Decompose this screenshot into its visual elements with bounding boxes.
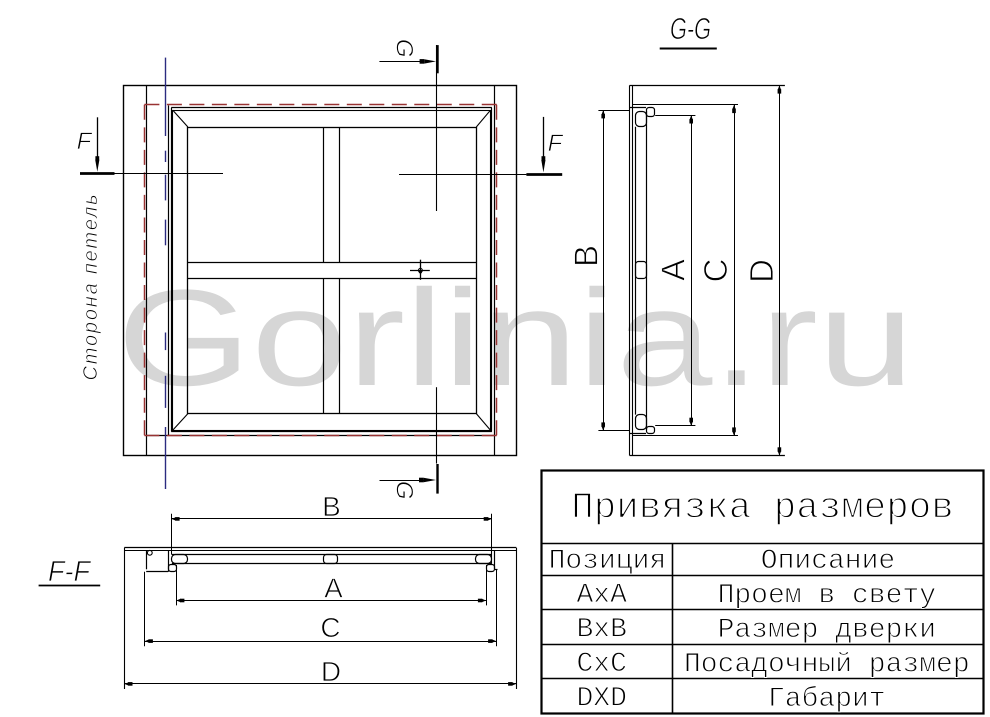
svg-text:C: C — [320, 612, 340, 643]
svg-text:ВхВ: ВхВ — [576, 615, 626, 646]
svg-text:АхА: АхА — [576, 580, 627, 611]
svg-text:G-G: G-G — [670, 11, 711, 46]
svg-text:Размер дверки: Размер дверки — [718, 615, 936, 646]
svg-text:B: B — [322, 491, 341, 522]
svg-text:A: A — [655, 259, 692, 281]
svg-text:Описание: Описание — [761, 546, 895, 577]
svg-text:Посадочный размер: Посадочный размер — [684, 650, 970, 681]
svg-text:Сторона петель: Сторона петель — [80, 193, 102, 381]
svg-text:C: C — [697, 259, 734, 283]
svg-text:G: G — [391, 481, 418, 500]
svg-text:F-F: F-F — [48, 556, 92, 588]
svg-text:Привязка размеров: Привязка размеров — [571, 488, 954, 530]
svg-text:D: D — [321, 656, 341, 687]
svg-text:Проем в свету: Проем в свету — [718, 581, 936, 612]
svg-text:F: F — [548, 130, 564, 157]
svg-text:D: D — [743, 259, 780, 283]
svg-text:A: A — [324, 573, 343, 604]
svg-text:Позиция: Позиция — [549, 546, 667, 577]
svg-text:СхС: СхС — [576, 649, 626, 680]
svg-text:Габарит: Габарит — [768, 684, 886, 715]
svg-text:B: B — [568, 245, 605, 267]
svg-text:Gorlinia.ru: Gorlinia.ru — [117, 262, 914, 415]
svg-text:F: F — [77, 128, 93, 155]
svg-text:G: G — [391, 39, 418, 58]
svg-text:DXD: DXD — [576, 684, 626, 715]
